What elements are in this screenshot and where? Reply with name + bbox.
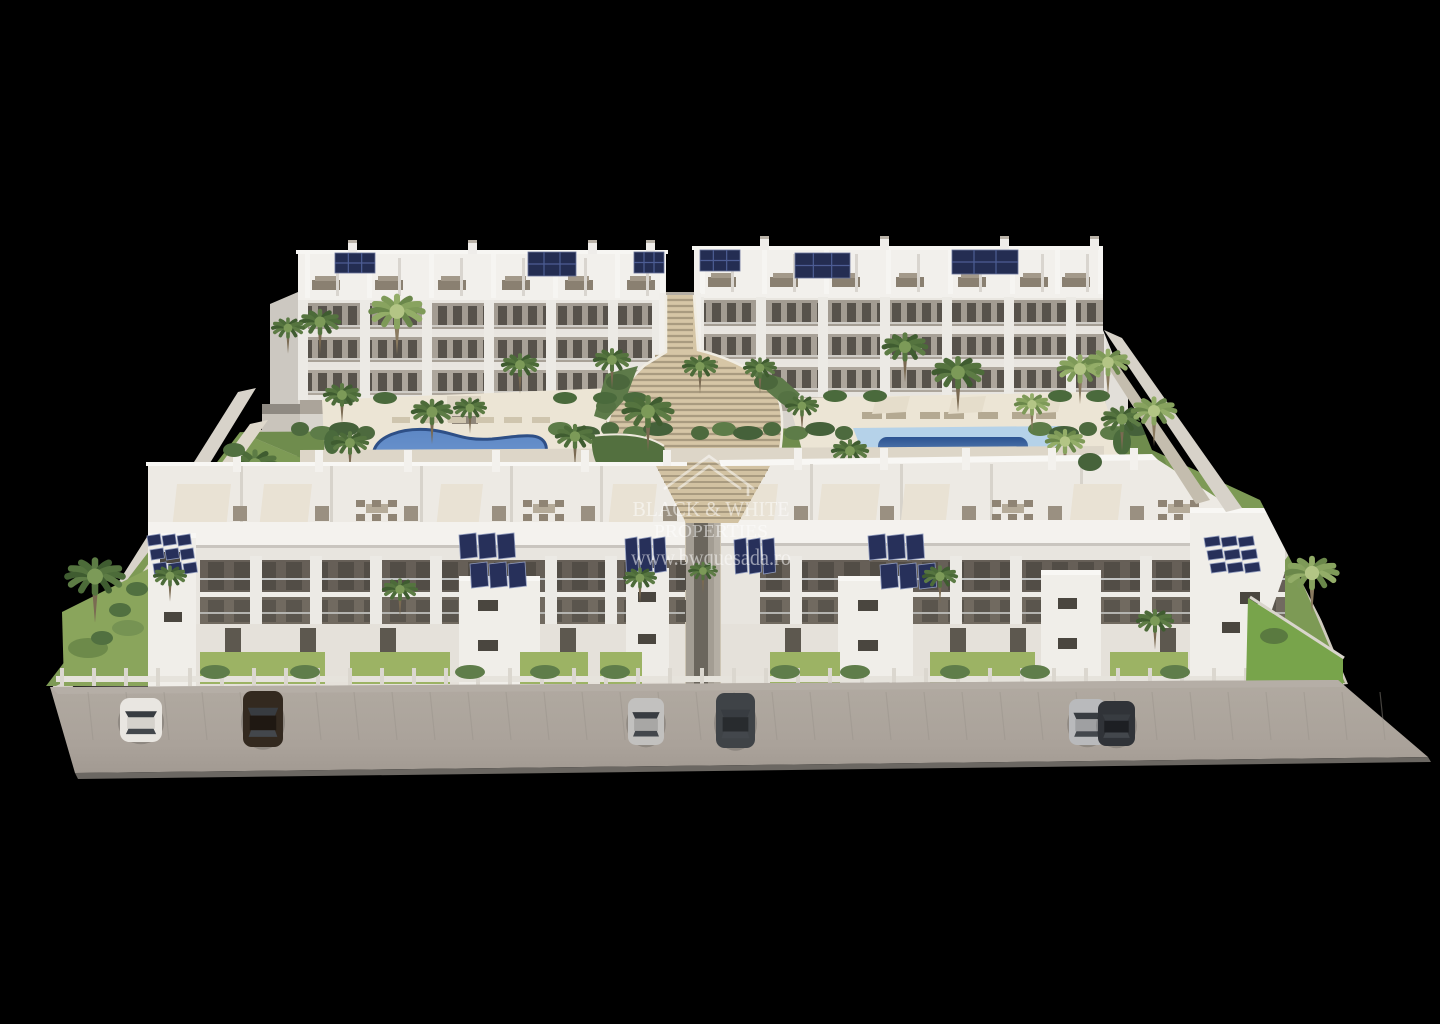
- svg-text:www.bwquesada.ro: www.bwquesada.ro: [631, 545, 791, 570]
- svg-text:PROPERTIES: PROPERTIES: [654, 521, 768, 541]
- svg-text:BLACK & WHITE: BLACK & WHITE: [633, 497, 790, 521]
